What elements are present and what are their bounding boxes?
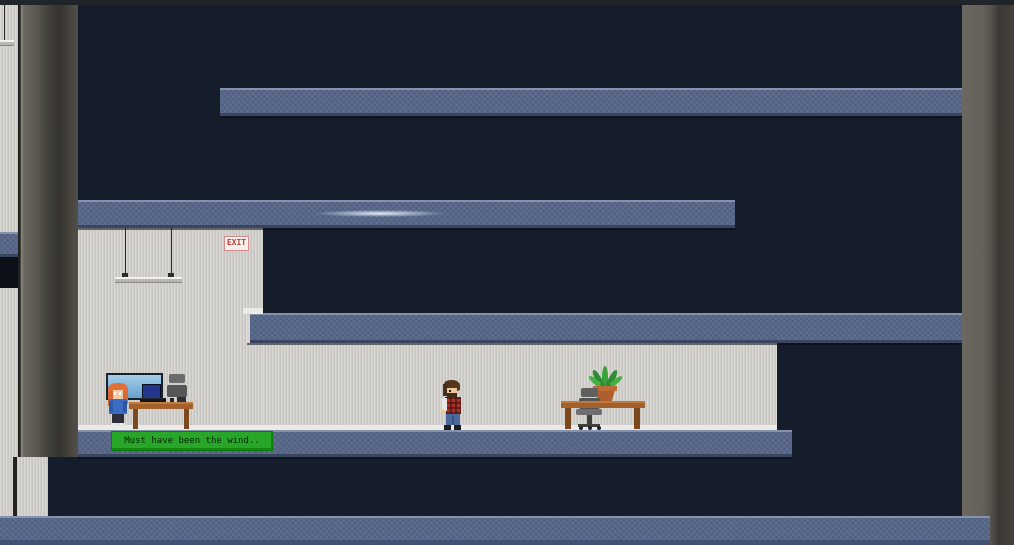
npc-shoe-right xyxy=(119,423,125,428)
npc-eye-left xyxy=(114,392,116,395)
office-desk-leg-right xyxy=(184,409,189,429)
light-streak xyxy=(315,210,445,217)
player-eye xyxy=(449,390,451,392)
pc-monitor xyxy=(142,384,161,399)
ceiling-lamp-bar xyxy=(115,277,182,283)
office-chair-headrest xyxy=(169,374,185,383)
player-shirt-plaid xyxy=(445,397,461,414)
platform-mid xyxy=(247,313,962,343)
bottom-left-wallpaper xyxy=(0,457,48,516)
npc-arm-right xyxy=(123,401,127,412)
bottom-left-wall-edge xyxy=(13,457,17,516)
speech-bubble: Must have been the wind.. xyxy=(111,431,273,451)
platform-top xyxy=(220,88,962,116)
right-wall xyxy=(962,0,1014,545)
plant-desk-leg-left xyxy=(565,408,571,429)
office-desk-top xyxy=(129,402,193,409)
ceiling-lamp-wire-right xyxy=(171,228,172,277)
npc-pants xyxy=(112,414,124,423)
platform-mid-white-edge xyxy=(247,313,250,343)
office-desk-leg-left xyxy=(133,409,138,429)
chair-wheel xyxy=(579,426,583,430)
exit-sign: EXIT xyxy=(224,236,249,251)
plant-desk-chair-pole xyxy=(587,415,592,424)
chair-wheel xyxy=(588,426,592,430)
ceiling-lamp-wire-left xyxy=(125,228,126,277)
platform-mid-white-ledge xyxy=(243,308,263,314)
office-room-lower-wallpaper xyxy=(263,343,777,430)
player-shoe-right xyxy=(454,425,461,430)
npc-office-worker[interactable] xyxy=(108,383,130,428)
chair-wheel xyxy=(597,426,601,430)
ground-platform xyxy=(0,516,990,545)
left-sliver-floor xyxy=(0,232,18,257)
npc-eye-right xyxy=(119,392,121,395)
player-jeans-seam xyxy=(452,416,454,425)
player-shoe-left xyxy=(444,425,451,430)
left-sliver-dark-gap xyxy=(0,257,18,288)
plant-desk-chair-headrest xyxy=(581,388,598,397)
npc-shoe-left xyxy=(111,423,117,428)
top-dark-bar xyxy=(0,0,1014,5)
npc-arm-left xyxy=(109,401,113,412)
game-viewport: EXIT xyxy=(0,0,1014,545)
left-sliver-lamp-wire xyxy=(4,4,5,40)
left-wall xyxy=(18,0,78,457)
office-chair-backrest xyxy=(167,385,187,397)
left-sliver-lamp-bar xyxy=(0,40,14,46)
plant-desk-leg-right xyxy=(634,408,640,429)
player-character[interactable] xyxy=(442,380,464,430)
plant-desk-top xyxy=(561,401,645,408)
